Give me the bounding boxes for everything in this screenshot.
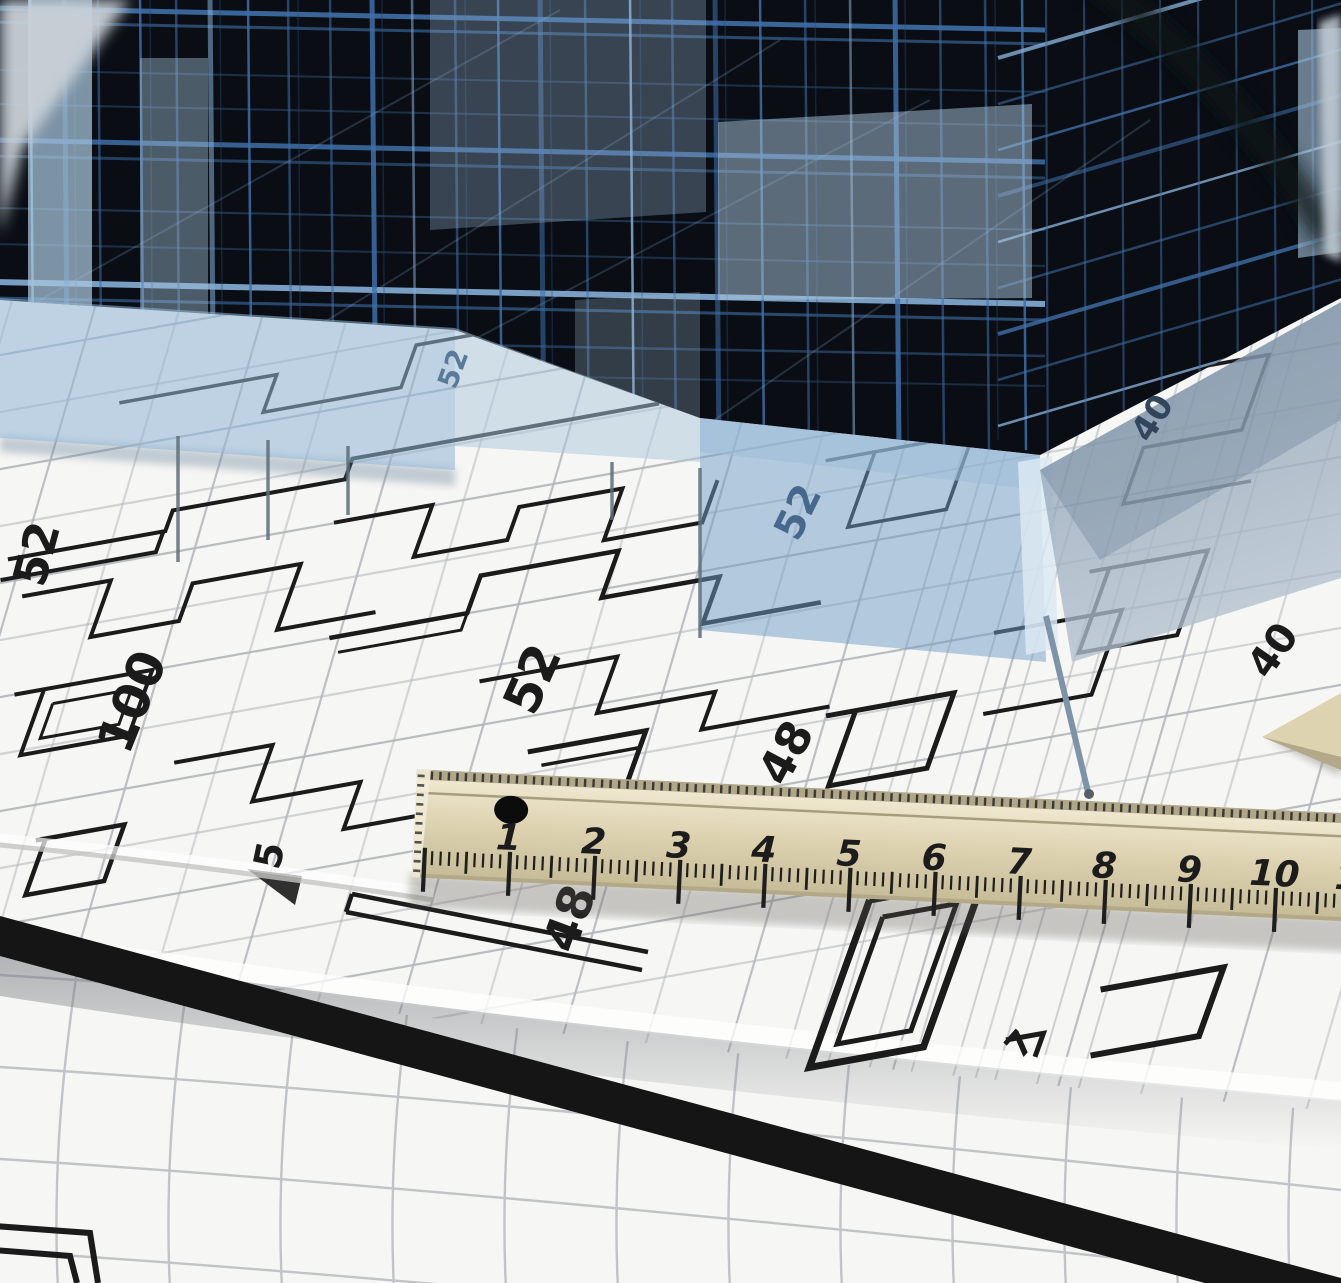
glass-panel — [718, 104, 1032, 300]
ruler-edge-tick — [1213, 808, 1216, 816]
glass-panel — [430, 0, 706, 230]
ruler-edge-tick — [1290, 812, 1293, 820]
ruler-edge-tick — [720, 785, 723, 793]
ruler-end-tick — [416, 803, 423, 806]
ruler-edge-tick — [1299, 812, 1302, 820]
ruler-edge-tick — [694, 784, 697, 792]
ruler-edge-tick — [541, 777, 544, 785]
ruler-number: 7 — [1006, 841, 1033, 883]
ruler-edge-tick — [1162, 806, 1165, 814]
ruler-edge-tick — [516, 776, 519, 784]
ruler-edge-tick — [490, 774, 493, 782]
ruler-number: 5 — [836, 833, 863, 875]
ruler-number: 9 — [1176, 849, 1203, 891]
ruler-edge-tick — [1069, 802, 1072, 810]
ruler-end-tick — [414, 860, 421, 863]
ruler-edge-tick — [916, 794, 919, 802]
ruler-edge-tick — [941, 796, 944, 804]
ruler-edge-tick — [779, 788, 782, 796]
ruler-number: 6 — [921, 837, 948, 879]
ruler-edge-tick — [1179, 807, 1182, 815]
ruler-edge-tick — [635, 781, 638, 789]
ruler-edge-tick — [584, 779, 587, 787]
ruler-edge-tick — [805, 789, 808, 797]
ruler-edge-tick — [762, 787, 765, 795]
ruler-edge-tick — [830, 790, 833, 798]
ruler-edge-tick — [1188, 807, 1191, 815]
ruler-edge-tick — [1265, 811, 1268, 819]
ruler-edge-tick — [567, 778, 570, 786]
ruler-edge-tick — [1043, 800, 1046, 808]
ruler-edge-tick — [1273, 811, 1276, 819]
ruler-end-tick — [414, 850, 421, 853]
ruler-edge-tick — [1137, 805, 1140, 813]
ruler-edge-tick — [1239, 810, 1242, 818]
ruler-end-tick — [413, 869, 420, 872]
ruler-edge-tick — [1052, 801, 1055, 809]
ruler-edge-tick — [643, 782, 646, 790]
ruler-edge-tick — [430, 772, 433, 780]
ruler-edge-tick — [618, 780, 621, 788]
ruler-edge-tick — [1145, 805, 1148, 813]
ruler-end-tick — [415, 822, 422, 825]
ruler-edge-tick — [1222, 809, 1225, 817]
ruler-edge-tick — [856, 792, 859, 800]
ruler-edge-tick — [1094, 803, 1097, 811]
ruler-end-tick — [418, 774, 425, 777]
ruler-edge-tick — [1001, 798, 1004, 806]
ruler-edge-tick — [933, 795, 936, 803]
ruler-edge-tick — [771, 788, 774, 796]
ruler-edge-tick — [456, 773, 459, 781]
architectural-blueprint-photo: 521005248405487405252 1234567891011 — [0, 0, 1341, 1283]
ruler-edge-tick — [448, 772, 451, 780]
ruler-edge-tick — [728, 786, 731, 794]
ruler-edge-tick — [660, 782, 663, 790]
ruler-edge-tick — [924, 795, 927, 803]
ruler-number: 10 — [1249, 853, 1301, 896]
ruler-edge-tick — [677, 783, 680, 791]
ruler-edge-tick — [1086, 802, 1089, 810]
ruler-edge-tick — [882, 793, 885, 801]
ruler-edge-tick — [1154, 806, 1157, 814]
ruler-edge-tick — [1103, 803, 1106, 811]
ruler-end-tick — [417, 784, 424, 787]
ruler-edge-tick — [1128, 804, 1131, 812]
ruler-edge-tick — [899, 794, 902, 802]
ruler-edge-tick — [558, 778, 561, 786]
slab-corner-foot — [1084, 789, 1094, 799]
ruler-edge-tick — [992, 798, 995, 806]
ruler-end-tick — [417, 793, 424, 796]
ruler-number: 11 — [1334, 857, 1341, 900]
ruler-edge-tick — [601, 780, 604, 788]
ruler-edge-tick — [788, 788, 791, 796]
ruler-edge-tick — [609, 780, 612, 788]
ruler-edge-tick — [958, 796, 961, 804]
ruler-edge-tick — [592, 779, 595, 787]
ruler-edge-tick — [1324, 814, 1327, 822]
ruler-edge-tick — [499, 775, 502, 783]
ruler-edge-tick — [1205, 808, 1208, 816]
ruler-edge-tick — [1120, 804, 1123, 812]
ruler-edge-tick — [1282, 812, 1285, 820]
ruler-edge-tick — [439, 772, 442, 780]
ruler-edge-tick — [754, 787, 757, 795]
ruler-edge-tick — [482, 774, 485, 782]
ruler-edge-tick — [950, 796, 953, 804]
ruler-edge-tick — [533, 776, 536, 784]
ruler-edge-tick — [984, 798, 987, 806]
ruler-edge-tick — [848, 791, 851, 799]
ruler-edge-tick — [473, 774, 476, 782]
ruler-edge-tick — [1018, 799, 1021, 807]
ruler-edge-tick — [686, 784, 689, 792]
ruler-number: 8 — [1091, 845, 1118, 887]
ruler-edge-tick — [1196, 808, 1199, 816]
ruler-edge-tick — [524, 776, 527, 784]
ruler-edge-tick — [1111, 804, 1114, 812]
ruler-edge-tick — [865, 792, 868, 800]
ruler-edge-tick — [975, 797, 978, 805]
ruler-edge-tick — [703, 784, 706, 792]
ruler-edge-tick — [967, 797, 970, 805]
ruler-edge-tick — [669, 783, 672, 791]
ruler-edge-tick — [550, 777, 553, 785]
ruler-edge-tick — [745, 786, 748, 794]
ruler-edge-tick — [1171, 806, 1174, 814]
ruler-edge-tick — [507, 775, 510, 783]
ruler-number: 2 — [580, 821, 607, 863]
ruler-edge-tick — [839, 791, 842, 799]
ruler-edge-tick — [1077, 802, 1080, 810]
ruler-edge-tick — [1333, 814, 1336, 822]
ruler-edge-tick — [626, 781, 629, 789]
scene-svg: 521005248405487405252 1234567891011 — [0, 0, 1341, 1283]
ruler-edge-tick — [1035, 800, 1038, 808]
ruler-end-tick — [414, 841, 421, 844]
ruler-edge-tick — [796, 789, 799, 797]
ruler-edge-tick — [465, 773, 468, 781]
ruler-edge-tick — [652, 782, 655, 790]
ruler-edge-tick — [1026, 800, 1029, 808]
ruler-number: 3 — [665, 825, 692, 867]
ruler-edge-tick — [907, 794, 910, 802]
ruler-edge-tick — [575, 778, 578, 786]
ruler-edge-tick — [737, 786, 740, 794]
ruler-edge-tick — [1009, 799, 1012, 807]
ruler-edge-tick — [813, 790, 816, 798]
ruler-end-tick — [415, 831, 422, 834]
ruler-end-tick — [416, 812, 423, 815]
ruler-edge-tick — [1248, 810, 1251, 818]
ruler-edge-tick — [1307, 813, 1310, 821]
ruler-edge-tick — [1316, 813, 1319, 821]
ruler-edge-tick — [890, 793, 893, 801]
ruler-number: 4 — [749, 829, 777, 871]
ruler-edge-tick — [822, 790, 825, 798]
ruler-edge-tick — [1060, 801, 1063, 809]
ruler-edge-tick — [873, 792, 876, 800]
ruler-edge-tick — [1230, 809, 1233, 817]
ruler-edge-tick — [711, 785, 714, 793]
ruler-edge-tick — [1256, 810, 1259, 818]
